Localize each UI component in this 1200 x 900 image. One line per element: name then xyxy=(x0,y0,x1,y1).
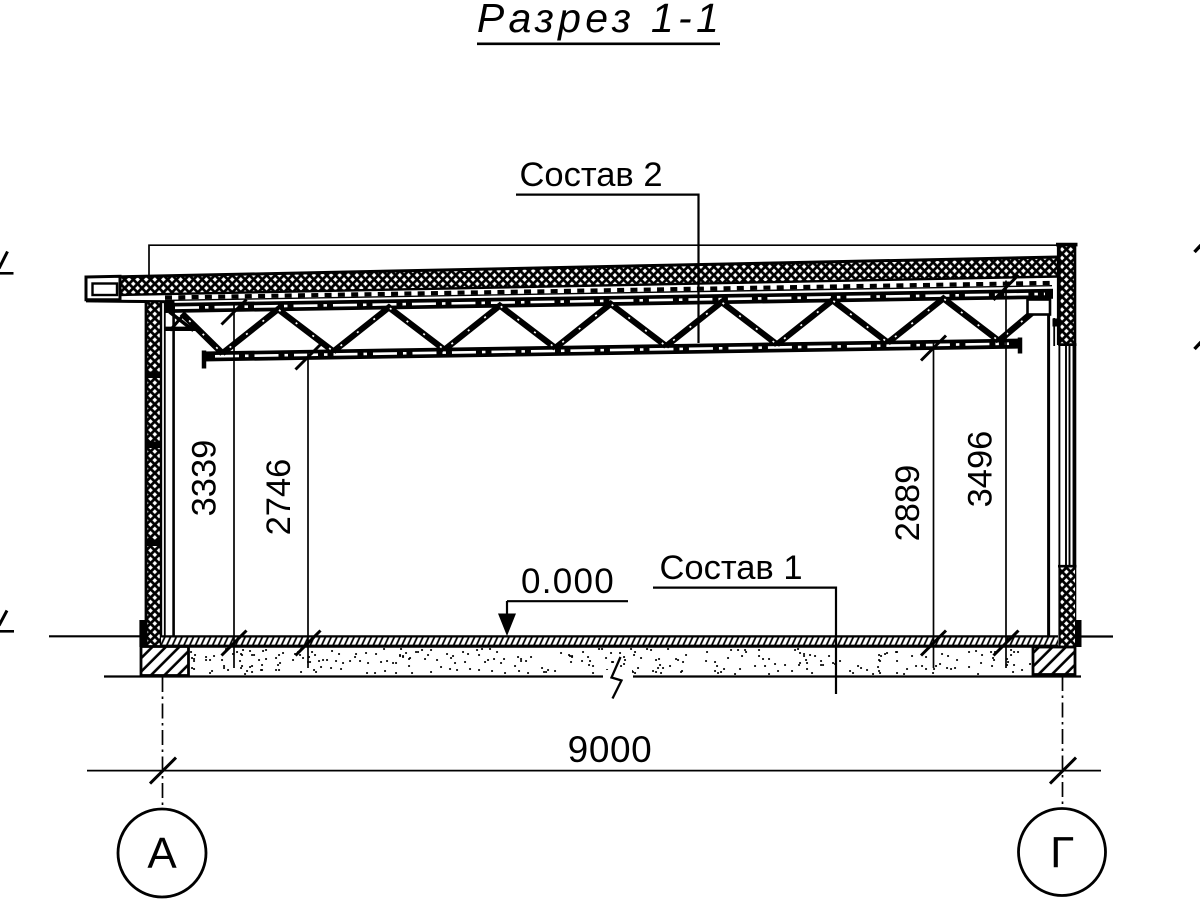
svg-text:3496: 3496 xyxy=(962,431,1000,508)
svg-text:2889: 2889 xyxy=(889,465,927,542)
svg-text:А: А xyxy=(147,829,177,878)
svg-text:Г: Г xyxy=(1050,828,1074,877)
svg-text:0.000: 0.000 xyxy=(521,562,615,601)
svg-text:Разрез 1-1: Разрез 1-1 xyxy=(477,0,723,41)
svg-text:2746: 2746 xyxy=(260,459,298,536)
svg-text:3339: 3339 xyxy=(186,440,224,517)
svg-text:Состав 1: Состав 1 xyxy=(659,549,802,587)
svg-text:Состав 2: Состав 2 xyxy=(519,156,662,194)
svg-text:9000: 9000 xyxy=(568,729,653,770)
